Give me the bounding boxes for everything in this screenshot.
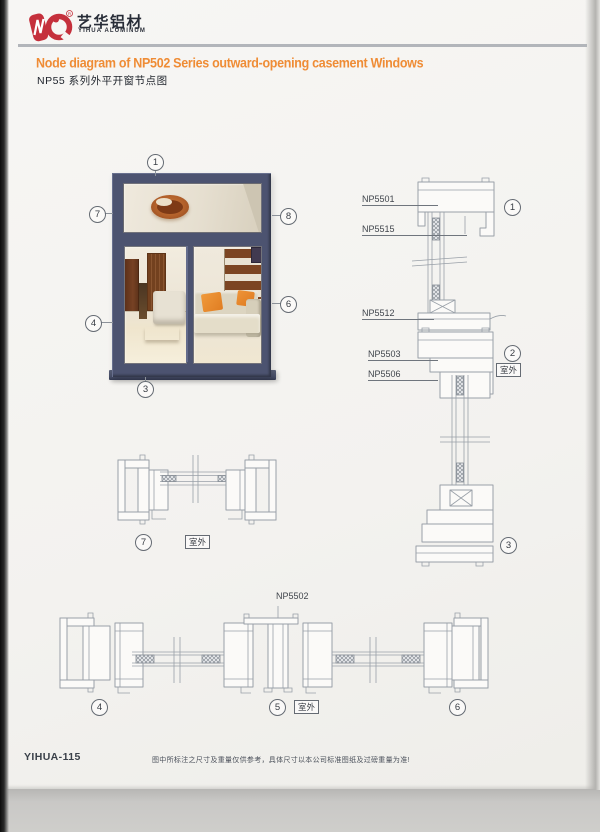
photo-pane-right: [193, 246, 262, 364]
interior-chair: [139, 283, 147, 319]
company-logo: R: [29, 9, 73, 45]
callout-photo-6: 6: [280, 296, 297, 313]
profile-label-np5503: NP5503: [368, 349, 438, 361]
interior-sofa-seat: [194, 314, 260, 333]
bottom-section-drawing: [58, 606, 490, 698]
profile-label-np5502: NP5502: [276, 591, 316, 602]
footer-page-code: YIHUA-115: [24, 751, 81, 763]
outdoor-badge-bottom: 室外: [294, 700, 319, 714]
scan-edge-right: [585, 0, 600, 790]
callout-section-3: 3: [500, 537, 517, 554]
photo-mullion-highlight: [186, 246, 188, 362]
footer-disclaimer: 图中所标注之尺寸及重量仅供参考，具体尺寸以本公司标准图纸及过磅重量为准!: [152, 755, 410, 765]
outdoor-badge-vertical: 室外: [496, 363, 521, 377]
callout-section-7: 7: [135, 534, 152, 551]
header-divider: [18, 44, 587, 47]
scanned-catalog-page: R 艺华铝材 YIHUA ALUMINUM Node diagram of NP…: [0, 0, 600, 832]
profile-label-np5501: NP5501: [362, 194, 438, 206]
photo-transom-glass: [123, 183, 262, 233]
orange-pillow: [201, 292, 223, 313]
ceiling-lamp: [151, 195, 189, 219]
callout-section-1: 1: [504, 199, 521, 216]
logo-mark-icon: R: [29, 9, 73, 45]
scan-bottom-band: [0, 789, 600, 832]
interior-coffee-table: [145, 327, 179, 340]
callout-section-6: 6: [449, 699, 466, 716]
callout-section-2: 2: [504, 345, 521, 362]
callout-photo-4: 4: [85, 315, 102, 332]
page-title-cn: NP55 系列外平开窗节点图: [37, 73, 168, 88]
interior-door: [125, 259, 139, 311]
brand-name-en: YIHUA ALUMINUM: [78, 28, 146, 34]
profile-label-np5515: NP5515: [362, 224, 467, 236]
photo-pane-left: [124, 246, 187, 364]
interior-picture: [251, 247, 262, 263]
outdoor-badge-mid: 室外: [185, 535, 210, 549]
profile-label-np5512: NP5512: [362, 308, 434, 320]
callout-section-4: 4: [91, 699, 108, 716]
scan-edge-left: [0, 0, 9, 832]
window-photo: [112, 173, 271, 377]
mid-section-drawing: [112, 447, 282, 527]
callout-section-5: 5: [269, 699, 286, 716]
callout-photo-8: 8: [280, 208, 297, 225]
ceiling-corner-shade: [229, 184, 262, 232]
profile-label-np5506: NP5506: [368, 369, 438, 381]
callout-photo-1: 1: [147, 154, 164, 171]
callout-photo-3: 3: [137, 381, 154, 398]
callout-photo-7: 7: [89, 206, 106, 223]
page-title-en: Node diagram of NP502 Series outward-ope…: [36, 55, 423, 71]
interior-armchair: [153, 291, 185, 324]
